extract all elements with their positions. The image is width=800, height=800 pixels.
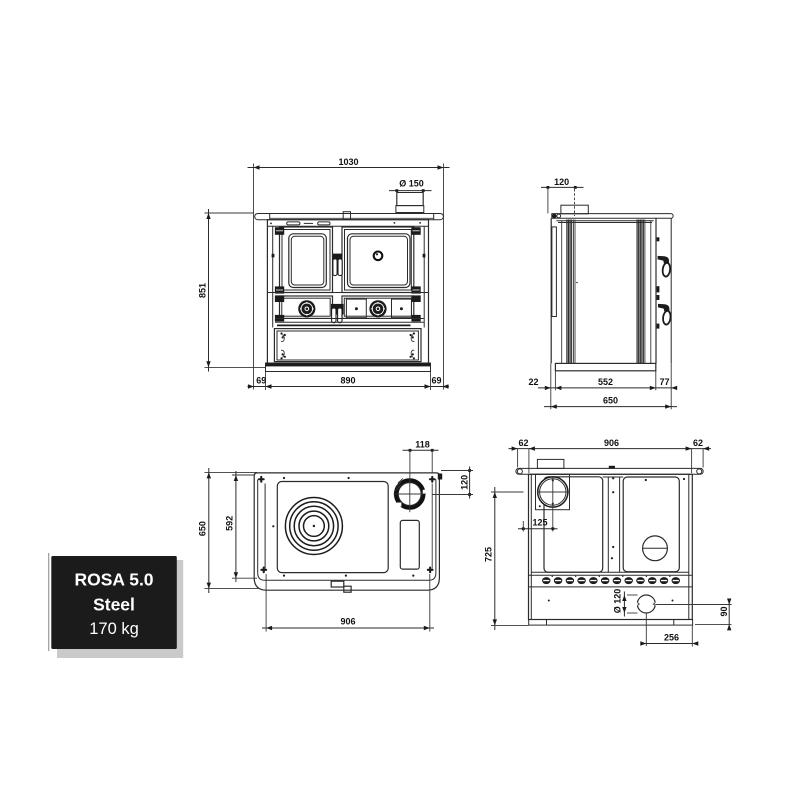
svg-text:90: 90 [719, 606, 729, 616]
svg-text:890: 890 [340, 376, 355, 386]
svg-text:Steel: Steel [93, 595, 135, 615]
svg-text:69: 69 [431, 376, 441, 386]
svg-text:62: 62 [518, 438, 528, 448]
svg-text:120: 120 [459, 475, 469, 490]
svg-text:1030: 1030 [338, 157, 358, 167]
svg-text:125: 125 [532, 518, 547, 528]
svg-text:Ø 150: Ø 150 [399, 179, 424, 189]
svg-text:69: 69 [256, 376, 266, 386]
svg-text:256: 256 [664, 632, 679, 642]
svg-text:22: 22 [528, 377, 538, 387]
svg-text:650: 650 [197, 521, 207, 536]
svg-text:906: 906 [604, 438, 619, 448]
svg-text:650: 650 [603, 396, 618, 406]
svg-text:120: 120 [554, 177, 569, 187]
svg-text:118: 118 [415, 439, 430, 449]
svg-text:Ø 120: Ø 120 [613, 589, 623, 614]
svg-text:725: 725 [484, 547, 494, 562]
svg-text:77: 77 [659, 377, 669, 387]
svg-text:62: 62 [693, 438, 703, 448]
svg-text:ROSA 5.0: ROSA 5.0 [74, 570, 153, 590]
svg-text:552: 552 [598, 377, 613, 387]
svg-text:906: 906 [340, 617, 355, 627]
svg-text:592: 592 [225, 516, 235, 531]
svg-text:851: 851 [198, 283, 208, 298]
svg-text:170 kg: 170 kg [89, 620, 139, 638]
